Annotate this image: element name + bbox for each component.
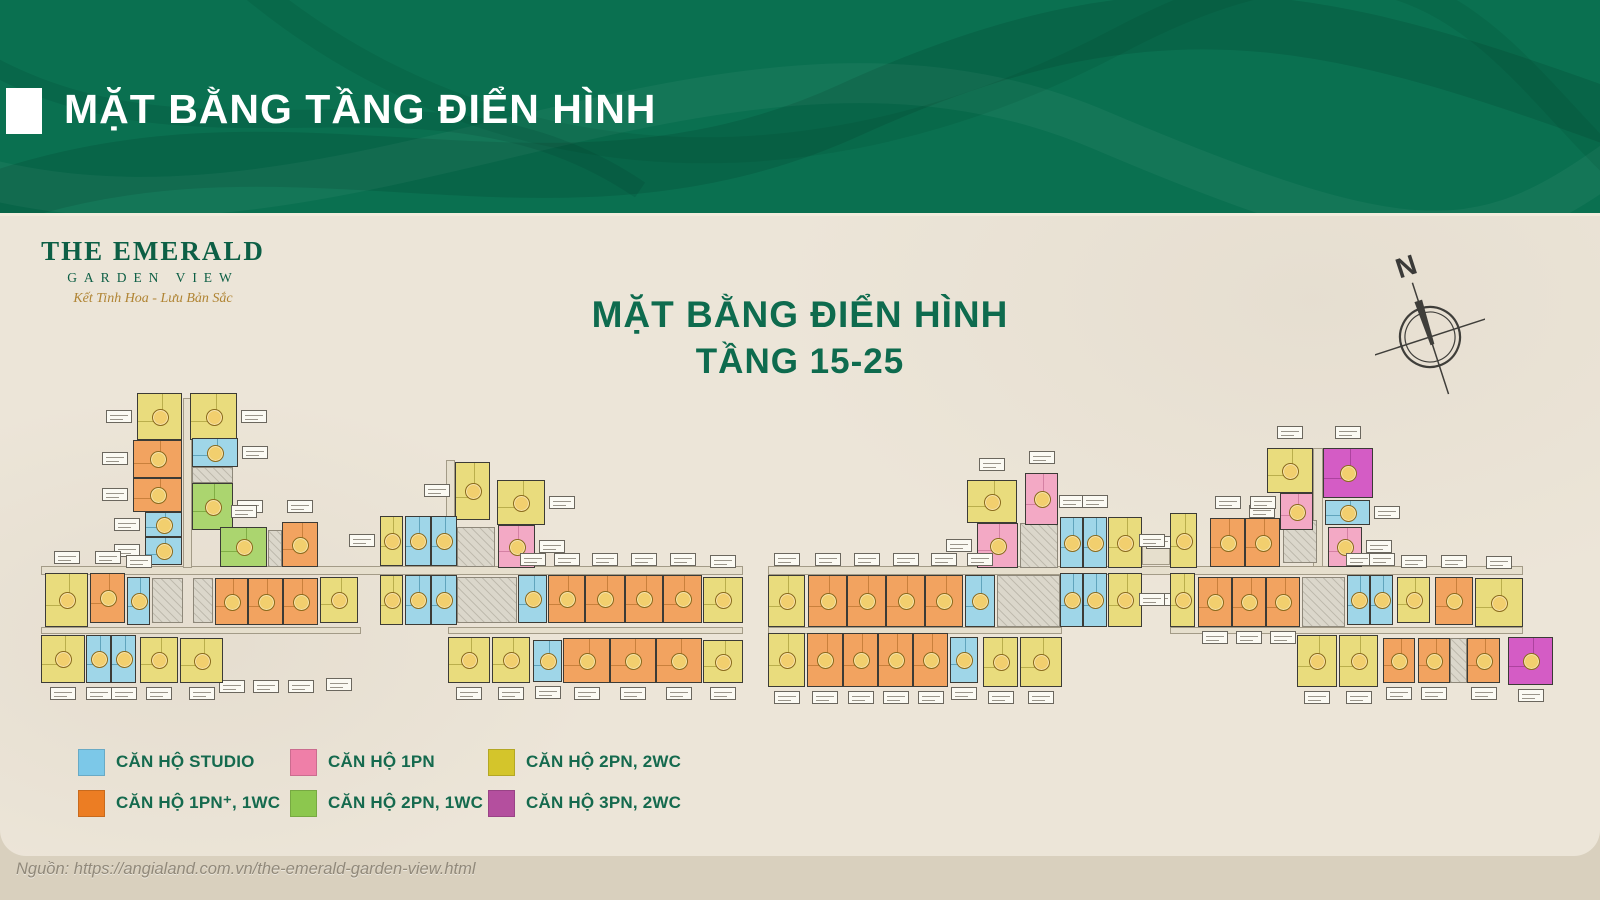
unit-number-badge [1391, 653, 1408, 670]
unit-number-badge [923, 652, 940, 669]
unit-studio [1347, 575, 1370, 625]
unit-2pn-2wc [320, 577, 358, 623]
area-label-chip [592, 553, 618, 566]
area-label-chip [918, 691, 944, 704]
unit-number-badge [513, 495, 530, 512]
unit-2pn-2wc [703, 577, 743, 623]
unit-1pn-plus [133, 440, 182, 478]
area-label-chip [893, 553, 919, 566]
unit-1pn-plus [1435, 577, 1473, 625]
area-label-chip [1202, 631, 1228, 644]
unit-1pn-plus [248, 578, 283, 625]
area-label-chip [1270, 631, 1296, 644]
service-core [997, 575, 1060, 627]
unit-number-badge [1255, 535, 1272, 552]
area-label-chip [554, 553, 580, 566]
unit-studio [1370, 575, 1393, 625]
unit-1pn-plus [215, 578, 248, 625]
area-label-chip [287, 500, 313, 513]
unit-number-badge [779, 593, 796, 610]
service-core [1302, 577, 1345, 627]
unit-2pn-2wc [1170, 513, 1197, 568]
unit-number-badge [207, 445, 224, 462]
unit-studio [405, 516, 431, 566]
area-label-chip [854, 553, 880, 566]
unit-number-badge [156, 543, 173, 560]
area-label-chip [979, 458, 1005, 471]
unit-1pn-plus [886, 575, 925, 627]
unit-2pn-2wc [190, 393, 237, 440]
unit-number-badge [1476, 653, 1493, 670]
unit-number-badge [1064, 535, 1081, 552]
unit-1pn-plus [563, 638, 610, 683]
unit-2pn-2wc [768, 633, 805, 687]
area-label-chip [1028, 691, 1054, 704]
unit-number-badge [1207, 594, 1224, 611]
unit-number-badge [1241, 594, 1258, 611]
unit-2pn-2wc [380, 516, 403, 566]
unit-number-badge [956, 652, 973, 669]
legend-swatch [488, 790, 515, 817]
unit-number-badge [131, 593, 148, 610]
legend-item-5: CĂN HỘ 3PN, 2WC [488, 789, 681, 817]
unit-1pn-plus [585, 575, 625, 623]
legend: CĂN HỘ STUDIOCĂN HỘ 1PNCĂN HỘ 2PN, 2WCCĂ… [78, 748, 681, 817]
poster: MẶT BẰNG TẦNG ĐIỂN HÌNH THE EMERALD GARD… [0, 0, 1600, 900]
unit-1pn-plus [90, 573, 125, 623]
unit-number-badge [859, 593, 876, 610]
unit-studio [145, 512, 182, 537]
unit-1pn-plus [656, 638, 702, 683]
area-label-chip [951, 687, 977, 700]
unit-number-badge [540, 653, 557, 670]
legend-label: CĂN HỘ STUDIO [116, 752, 255, 772]
area-label-chip [946, 539, 972, 552]
unit-1pn-plus [610, 638, 656, 683]
unit-number-badge [853, 652, 870, 669]
unit-number-badge [1426, 653, 1443, 670]
unit-number-badge [150, 487, 167, 504]
area-label-chip [1082, 495, 1108, 508]
unit-number-badge [984, 494, 1001, 511]
unit-1pn-plus [1266, 577, 1300, 627]
unit-1pn-plus [1232, 577, 1266, 627]
service-core [192, 467, 233, 483]
service-core [457, 577, 517, 623]
unit-number-badge [1406, 592, 1423, 609]
unit-number-badge [410, 592, 427, 609]
legend-item-3: CĂN HỘ 1PN⁺, 1WC [78, 789, 290, 817]
unit-number-badge [820, 593, 837, 610]
area-label-chip [988, 691, 1014, 704]
area-label-chip [231, 505, 257, 518]
unit-number-badge [292, 537, 309, 554]
unit-2pn-2wc [1475, 578, 1523, 627]
unit-number-badge [152, 409, 169, 426]
service-core [1020, 523, 1058, 568]
unit-studio [431, 516, 457, 566]
unit-2pn-2wc [967, 480, 1017, 523]
area-label-chip [253, 680, 279, 693]
unit-2pn-2wc [140, 637, 178, 683]
unit-1pn-plus [925, 575, 963, 627]
area-label-chip [1441, 555, 1467, 568]
unit-1pn-plus [1418, 638, 1450, 683]
unit-number-badge [898, 593, 915, 610]
area-label-chip [1139, 593, 1165, 606]
unit-number-badge [1176, 533, 1193, 550]
unit-2pn-2wc [45, 573, 88, 627]
unit-2pn-2wc [1267, 448, 1313, 493]
unit-1pn-plus [878, 633, 913, 687]
area-label-chip [1471, 687, 1497, 700]
legend-item-4: CĂN HỘ 2PN, 1WC [290, 789, 488, 817]
area-label-chip [710, 555, 736, 568]
unit-studio [533, 640, 562, 682]
unit-3pn-2wc [1323, 448, 1373, 498]
unit-number-badge [1087, 535, 1104, 552]
legend-item-1: CĂN HỘ 1PN [290, 748, 488, 776]
unit-number-badge [936, 593, 953, 610]
area-label-chip [111, 687, 137, 700]
unit-1pn-plus [1383, 638, 1415, 683]
unit-number-badge [1033, 654, 1050, 671]
source-link-text: Nguồn: https://angialand.com.vn/the-emer… [16, 860, 476, 879]
area-label-chip [86, 687, 112, 700]
area-label-chip [848, 691, 874, 704]
unit-number-badge [1275, 594, 1292, 611]
unit-number-badge [1064, 592, 1081, 609]
unit-1pn-plus [1245, 518, 1280, 567]
unit-number-badge [993, 654, 1010, 671]
area-label-chip [1277, 426, 1303, 439]
unit-1pn-plus [282, 522, 318, 567]
unit-studio [86, 635, 111, 683]
area-label-chip [424, 484, 450, 497]
unit-studio [1083, 573, 1107, 627]
area-label-chip [189, 687, 215, 700]
unit-number-badge [579, 653, 596, 670]
unit-studio [405, 575, 431, 625]
unit-number-badge [224, 594, 241, 611]
unit-1pn-plus [847, 575, 886, 627]
area-label-chip [1518, 689, 1544, 702]
area-label-chip [54, 551, 80, 564]
unit-number-badge [715, 592, 732, 609]
unit-1pn-plus [663, 575, 702, 623]
unit-number-badge [194, 653, 211, 670]
area-label-chip [95, 551, 121, 564]
area-label-chip [498, 687, 524, 700]
unit-2pn-2wc [1020, 637, 1062, 687]
unit-number-badge [972, 593, 989, 610]
area-label-chip [349, 534, 375, 547]
legend-item-0: CĂN HỘ STUDIO [78, 748, 290, 776]
area-label-chip [1304, 691, 1330, 704]
service-core [193, 578, 213, 623]
unit-1pn [1025, 473, 1058, 525]
unit-number-badge [1340, 465, 1357, 482]
unit-number-badge [1117, 535, 1134, 552]
unit-2pn-2wc [1108, 573, 1142, 627]
area-label-chip [114, 518, 140, 531]
unit-3pn-2wc [1508, 637, 1553, 685]
area-label-chip [1335, 426, 1361, 439]
unit-2pn-2wc [448, 637, 490, 683]
unit-number-badge [100, 590, 117, 607]
unit-number-badge [331, 592, 348, 609]
unit-1pn-plus [913, 633, 948, 687]
area-label-chip [666, 687, 692, 700]
area-label-chip [102, 488, 128, 501]
service-core [1450, 638, 1467, 683]
unit-number-badge [597, 591, 614, 608]
unit-2pn-2wc [1339, 635, 1378, 687]
unit-number-badge [410, 533, 427, 550]
unit-1pn-plus [548, 575, 585, 623]
area-label-chip [241, 410, 267, 423]
unit-2pn-1wc [192, 483, 233, 530]
unit-number-badge [91, 651, 108, 668]
unit-number-badge [206, 409, 223, 426]
unit-1pn-plus [807, 633, 843, 687]
area-label-chip [670, 553, 696, 566]
unit-number-badge [156, 517, 173, 534]
unit-studio [950, 637, 978, 683]
unit-number-badge [461, 652, 478, 669]
area-label-chip [1369, 553, 1395, 566]
corridor [41, 627, 361, 634]
legend-label: CĂN HỘ 2PN, 1WC [328, 793, 483, 813]
unit-2pn-2wc [137, 393, 182, 440]
area-label-chip [620, 687, 646, 700]
unit-number-badge [990, 538, 1007, 555]
unit-2pn-2wc [497, 480, 545, 525]
unit-2pn-2wc [1397, 577, 1430, 623]
legend-label: CĂN HỘ 3PN, 2WC [526, 793, 681, 813]
unit-number-badge [236, 539, 253, 556]
area-label-chip [1139, 534, 1165, 547]
area-label-chip [1029, 451, 1055, 464]
unit-1pn-plus [1198, 577, 1232, 627]
unit-studio [1083, 517, 1107, 568]
unit-number-badge [1523, 653, 1540, 670]
unit-number-badge [625, 653, 642, 670]
unit-studio [127, 577, 150, 625]
unit-studio [111, 635, 136, 683]
unit-number-badge [1034, 491, 1051, 508]
unit-number-badge [559, 591, 576, 608]
area-label-chip [1250, 496, 1276, 509]
unit-2pn-2wc [455, 462, 490, 520]
area-label-chip [1366, 540, 1392, 553]
unit-number-badge [888, 652, 905, 669]
unit-2pn-2wc [703, 640, 743, 683]
legend-label: CĂN HỘ 2PN, 2WC [526, 752, 681, 772]
unit-number-badge [636, 591, 653, 608]
unit-number-badge [675, 591, 692, 608]
unit-number-badge [116, 651, 133, 668]
legend-label: CĂN HỘ 1PN [328, 752, 435, 772]
area-label-chip [815, 553, 841, 566]
unit-number-badge [1340, 505, 1357, 522]
area-label-chip [1374, 506, 1400, 519]
area-label-chip [1486, 556, 1512, 569]
area-label-chip [883, 691, 909, 704]
area-label-chip [1386, 687, 1412, 700]
unit-2pn-2wc [1170, 573, 1195, 627]
area-label-chip [326, 678, 352, 691]
unit-studio [192, 438, 238, 467]
area-label-chip [456, 687, 482, 700]
unit-number-badge [525, 591, 542, 608]
service-core [152, 578, 183, 623]
unit-number-badge [205, 499, 222, 516]
unit-number-badge [715, 654, 732, 671]
area-label-chip [126, 555, 152, 568]
unit-number-badge [384, 592, 401, 609]
area-label-chip [146, 687, 172, 700]
unit-2pn-2wc [180, 638, 223, 683]
area-label-chip [774, 553, 800, 566]
corridor [448, 627, 743, 634]
area-label-chip [931, 553, 957, 566]
unit-2pn-2wc [983, 637, 1018, 687]
unit-number-badge [779, 652, 796, 669]
unit-2pn-2wc [41, 635, 85, 683]
unit-1pn [1280, 493, 1313, 530]
unit-number-badge [1175, 592, 1192, 609]
area-label-chip [1236, 631, 1262, 644]
area-label-chip [1059, 495, 1085, 508]
unit-1pn-plus [1210, 518, 1245, 567]
legend-swatch [290, 749, 317, 776]
legend-swatch [488, 749, 515, 776]
unit-number-badge [59, 592, 76, 609]
unit-number-badge [1289, 504, 1306, 521]
legend-item-2: CĂN HỘ 2PN, 2WC [488, 748, 681, 776]
unit-number-badge [817, 652, 834, 669]
legend-swatch [78, 790, 105, 817]
unit-2pn-2wc [1108, 517, 1142, 568]
unit-number-badge [258, 594, 275, 611]
unit-number-badge [1374, 592, 1391, 609]
area-label-chip [774, 691, 800, 704]
unit-number-badge [503, 652, 520, 669]
unit-1pn-plus [1467, 638, 1500, 683]
area-label-chip [102, 452, 128, 465]
area-label-chip [967, 553, 993, 566]
unit-1pn-plus [133, 478, 182, 512]
unit-1pn-plus [625, 575, 663, 623]
unit-number-badge [1351, 592, 1368, 609]
area-label-chip [574, 687, 600, 700]
unit-number-badge [436, 533, 453, 550]
unit-studio [965, 575, 995, 627]
service-core [268, 530, 282, 567]
unit-number-badge [1282, 463, 1299, 480]
legend-swatch [290, 790, 317, 817]
area-label-chip [812, 691, 838, 704]
unit-1pn-plus [843, 633, 878, 687]
area-label-chip [539, 540, 565, 553]
area-label-chip [50, 687, 76, 700]
unit-1pn-plus [283, 578, 318, 625]
unit-number-badge [436, 592, 453, 609]
legend-swatch [78, 749, 105, 776]
area-label-chip [288, 680, 314, 693]
unit-number-badge [1351, 653, 1368, 670]
area-label-chip [1401, 555, 1427, 568]
area-label-chip [549, 496, 575, 509]
unit-studio [1060, 517, 1083, 568]
unit-number-badge [55, 651, 72, 668]
unit-2pn-2wc [380, 575, 403, 625]
area-label-chip [1215, 496, 1241, 509]
unit-2pn-2wc [492, 637, 530, 683]
unit-number-badge [384, 533, 401, 550]
area-label-chip [710, 687, 736, 700]
unit-number-badge [465, 483, 482, 500]
unit-number-badge [151, 652, 168, 669]
unit-2pn-2wc [768, 575, 805, 627]
legend-label: CĂN HỘ 1PN⁺, 1WC [116, 793, 280, 813]
unit-studio [1325, 500, 1370, 525]
area-label-chip [106, 410, 132, 423]
unit-studio [431, 575, 457, 625]
area-label-chip [520, 553, 546, 566]
unit-studio [1060, 573, 1083, 627]
unit-2pn-2wc [1297, 635, 1337, 687]
area-label-chip [242, 446, 268, 459]
area-label-chip [535, 686, 561, 699]
unit-number-badge [671, 653, 688, 670]
unit-number-badge [293, 594, 310, 611]
unit-studio [518, 575, 547, 623]
area-label-chip [1346, 691, 1372, 704]
unit-number-badge [1087, 592, 1104, 609]
area-label-chip [631, 553, 657, 566]
unit-number-badge [150, 451, 167, 468]
unit-number-badge [1309, 653, 1326, 670]
unit-1pn-plus [808, 575, 847, 627]
area-label-chip [1421, 687, 1447, 700]
unit-number-badge [1220, 535, 1237, 552]
unit-2pn-1wc [220, 527, 267, 567]
unit-number-badge [1446, 593, 1463, 610]
unit-number-badge [1491, 595, 1508, 612]
unit-number-badge [1117, 592, 1134, 609]
service-core [457, 527, 495, 567]
